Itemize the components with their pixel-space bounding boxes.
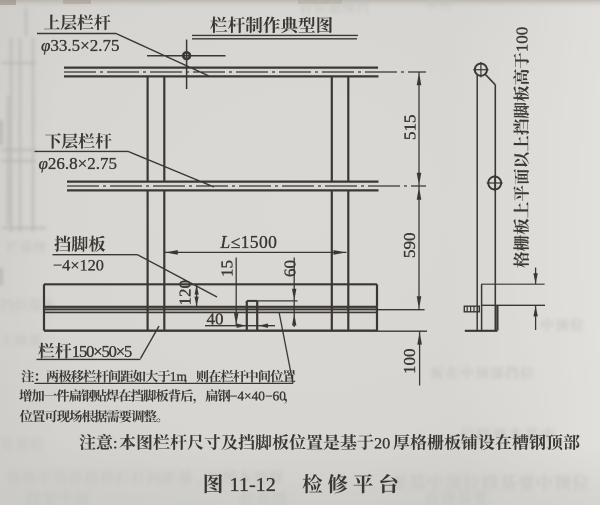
svg-text:20: 20 — [374, 434, 390, 453]
svg-text:100: 100 — [513, 27, 532, 53]
svg-text:100: 100 — [400, 349, 419, 375]
svg-text:150×50×5: 150×50×5 — [72, 342, 132, 361]
svg-text:−4×40−60: −4×40−60 — [230, 389, 286, 404]
svg-text:515: 515 — [401, 115, 420, 141]
svg-text:φ26.8×2.75: φ26.8×2.75 — [39, 154, 118, 173]
svg-text:40: 40 — [207, 310, 224, 329]
svg-text:60: 60 — [281, 260, 300, 277]
svg-text:L≤1500: L≤1500 — [220, 232, 278, 252]
svg-text:590: 590 — [400, 233, 419, 259]
svg-text::: : — [113, 434, 118, 453]
svg-text:φ33.5×2.75: φ33.5×2.75 — [41, 36, 120, 55]
svg-text:−4×120: −4×120 — [53, 256, 104, 275]
svg-text:120: 120 — [176, 280, 195, 306]
svg-text:1m: 1m — [170, 369, 188, 384]
svg-text:11-12: 11-12 — [230, 474, 276, 496]
svg-text:15: 15 — [218, 260, 237, 277]
